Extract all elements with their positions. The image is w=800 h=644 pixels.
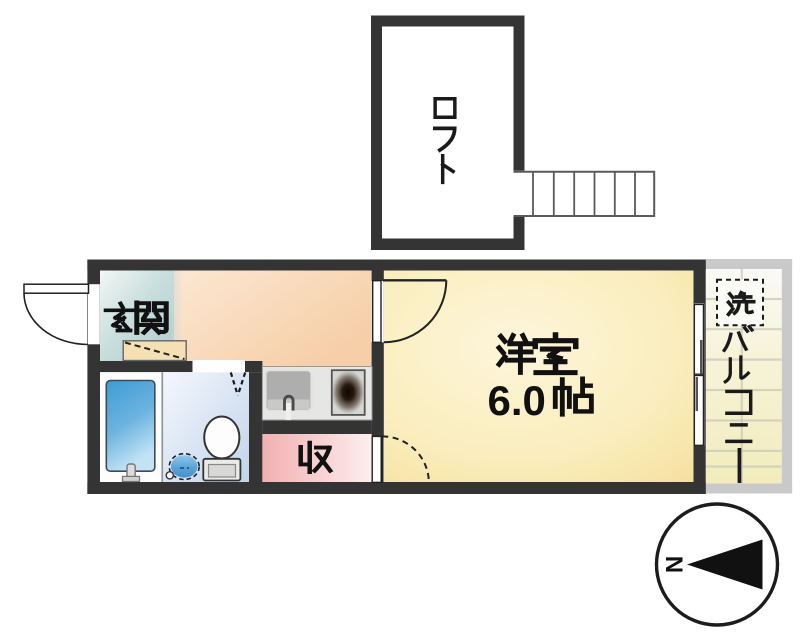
svg-text:6.0: 6.0 [488,377,546,424]
svg-text:N: N [662,556,689,573]
